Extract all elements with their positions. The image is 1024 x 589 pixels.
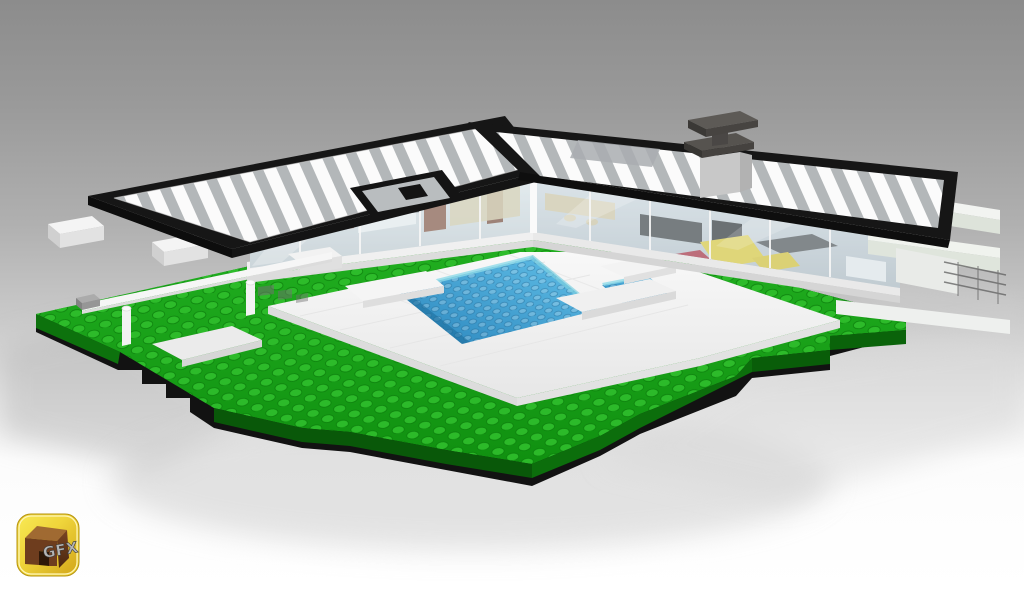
chimney-base-side [740,152,752,192]
fence-post [246,282,255,316]
lego-villa-render: GFX [0,0,1024,589]
fence-post-stud [246,280,255,285]
fence-post-stud [122,306,131,311]
ngfx-logo: GFX [17,514,80,576]
render-canvas: GFX [0,0,1024,589]
fence-post [122,308,131,346]
chimney-base-front [700,152,740,198]
